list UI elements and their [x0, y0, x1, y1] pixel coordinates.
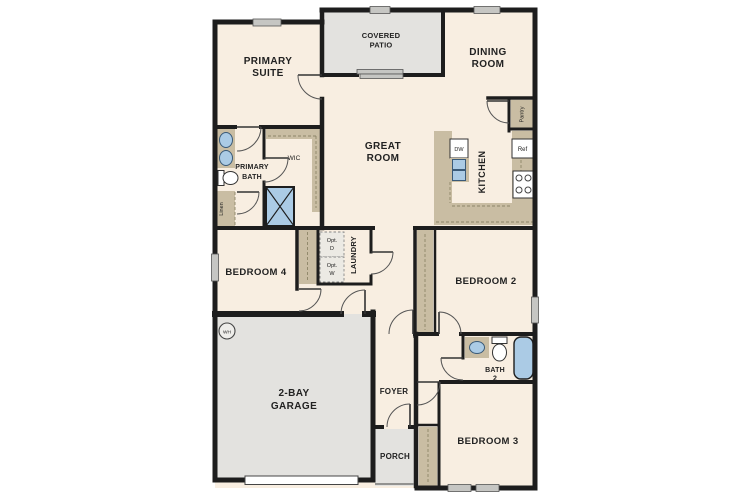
patio-slider-door — [357, 70, 403, 79]
floor-plan: PRIMARY SUITE COVERED PATIO DINING ROOM … — [0, 0, 750, 500]
dishwasher-label: DW — [454, 147, 464, 153]
primary-toilet-bowl — [223, 172, 238, 185]
foyer-label: FOYER — [380, 387, 409, 396]
primary-sink-1 — [220, 133, 233, 148]
primary-bath-label-1: PRIMARY — [235, 164, 269, 171]
floor-plan-screenshot: PRIMARY SUITE COVERED PATIO DINING ROOM … — [0, 0, 750, 500]
porch-label: PORCH — [380, 452, 410, 461]
wic-label: WIC — [288, 155, 301, 162]
dining-room-label-2: ROOM — [472, 59, 505, 70]
optional-washer-box — [320, 257, 344, 282]
covered-patio-label-1: COVERED — [362, 31, 401, 40]
opt-washer-label-1: Opt. — [327, 263, 338, 269]
garage-door — [245, 476, 358, 485]
optional-dryer-box — [320, 232, 344, 257]
opt-washer-label-2: W — [329, 271, 335, 277]
great-room-label-2: ROOM — [367, 153, 400, 164]
kitchen-sink-basin-1 — [453, 160, 466, 170]
window-bedroom3-b — [476, 485, 499, 492]
bath2-toilet-tank — [492, 337, 507, 344]
bath2-sink — [470, 342, 485, 354]
dining-room-label-1: DINING — [469, 47, 506, 58]
bath2-toilet-bowl — [493, 344, 507, 361]
window-dining — [474, 7, 500, 14]
bath2-label-2: 2 — [493, 376, 497, 383]
bedroom2-label: BEDROOM 2 — [455, 276, 516, 287]
bedroom3-label: BEDROOM 3 — [457, 436, 518, 447]
primary-suite-label-2: SUITE — [252, 68, 283, 79]
window-primary-suite — [253, 19, 281, 26]
kitchen-label: KITCHEN — [477, 151, 487, 194]
kitchen-sink-basin-2 — [453, 171, 466, 181]
bedroom4-label: BEDROOM 4 — [225, 267, 286, 278]
pantry-label: Pantry — [520, 106, 526, 122]
water-heater-label: WH — [223, 330, 232, 336]
shower-icon — [266, 187, 294, 226]
window-bedroom2 — [532, 297, 539, 323]
linen-label: Linen — [219, 202, 225, 215]
great-room-label-1: GREAT — [365, 141, 401, 152]
hall-chase — [299, 230, 318, 284]
garage-label-1: 2-BAY — [278, 388, 309, 399]
window-bedroom4 — [212, 254, 219, 281]
opt-dryer-label-1: Opt. — [327, 238, 338, 244]
stove-icon — [513, 171, 533, 198]
bathtub — [514, 337, 533, 379]
window-bedroom3-a — [448, 485, 471, 492]
opt-dryer-label-2: D — [330, 246, 334, 252]
bath2-label-1: BATH — [485, 367, 505, 374]
primary-sink-2 — [220, 151, 233, 166]
primary-suite-label-1: PRIMARY — [244, 56, 293, 67]
window-patio — [370, 7, 390, 14]
laundry-label: LAUNDRY — [349, 236, 358, 274]
refrigerator-label: Ref — [518, 147, 528, 153]
primary-bath-label-2: BATH — [242, 174, 262, 181]
covered-patio-label-2: PATIO — [370, 41, 393, 50]
kitchen-counter-left — [434, 131, 452, 205]
garage-label-2: GARAGE — [271, 401, 317, 412]
